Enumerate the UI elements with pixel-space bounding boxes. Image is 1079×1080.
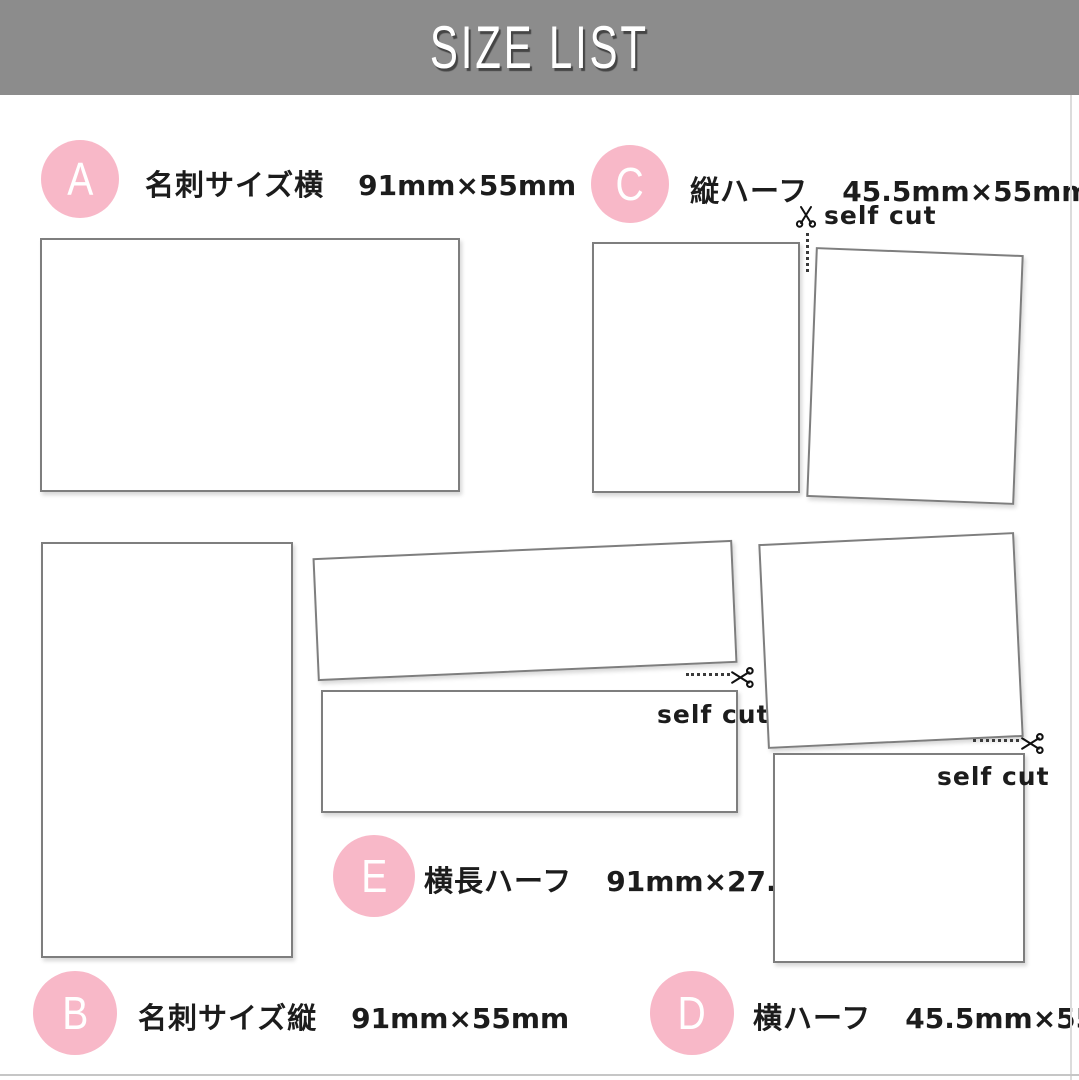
card-e-top-half — [313, 540, 738, 681]
header-bar: SIZE LIST — [0, 0, 1079, 95]
section-c-cut-note: self cut — [794, 201, 937, 230]
section-e-letter: E — [361, 849, 387, 903]
section-a-label: 名刺サイズ横 91mm×55mm — [145, 162, 576, 204]
section-a-badge: A — [41, 140, 119, 218]
scissors-icon — [729, 665, 754, 690]
card-a-horizontal — [40, 238, 460, 492]
section-e-badge: E — [333, 835, 415, 917]
card-b-vertical — [41, 542, 293, 958]
section-d-letter: D — [678, 986, 706, 1040]
section-b-name: 名刺サイズ縦 — [138, 995, 317, 1037]
section-d-cut-label: self cut — [937, 762, 1050, 791]
section-c-cut-label: self cut — [824, 201, 937, 230]
cut-line-horizontal — [686, 673, 730, 676]
section-d-size: 45.5mm×55mm — [905, 1002, 1079, 1035]
size-list-page: SIZE LIST A 名刺サイズ横 91mm×55mm C 縦ハーフ 45.5… — [0, 0, 1079, 1080]
scissors-icon — [794, 204, 818, 228]
section-e-cut-label: self cut — [657, 700, 770, 729]
section-d-name: 横ハーフ — [753, 995, 871, 1037]
cut-line-vertical — [806, 233, 809, 272]
section-b-size: 91mm×55mm — [351, 1002, 569, 1035]
page-edge-right — [1070, 95, 1072, 1080]
card-d-top-half — [758, 532, 1023, 749]
page-edge-bottom — [0, 1074, 1079, 1076]
section-c-badge: C — [591, 145, 669, 223]
section-c-letter: C — [616, 157, 644, 211]
section-d-badge: D — [650, 971, 734, 1055]
section-a-name: 名刺サイズ横 — [145, 162, 324, 204]
cut-line-horizontal — [973, 739, 1019, 742]
section-b-letter: B — [62, 986, 88, 1040]
section-a-size: 91mm×55mm — [358, 169, 576, 202]
section-a-letter: A — [67, 152, 93, 206]
section-e-name: 横長ハーフ — [424, 858, 572, 900]
card-c-right-half — [806, 247, 1023, 505]
page-title: SIZE LIST — [430, 13, 649, 82]
section-d-label: 横ハーフ 45.5mm×55mm — [753, 995, 1079, 1037]
section-b-label: 名刺サイズ縦 91mm×55mm — [138, 995, 569, 1037]
section-b-badge: B — [33, 971, 117, 1055]
card-c-left-half — [592, 242, 800, 493]
scissors-icon — [1019, 731, 1044, 756]
section-c-name: 縦ハーフ — [690, 168, 808, 210]
